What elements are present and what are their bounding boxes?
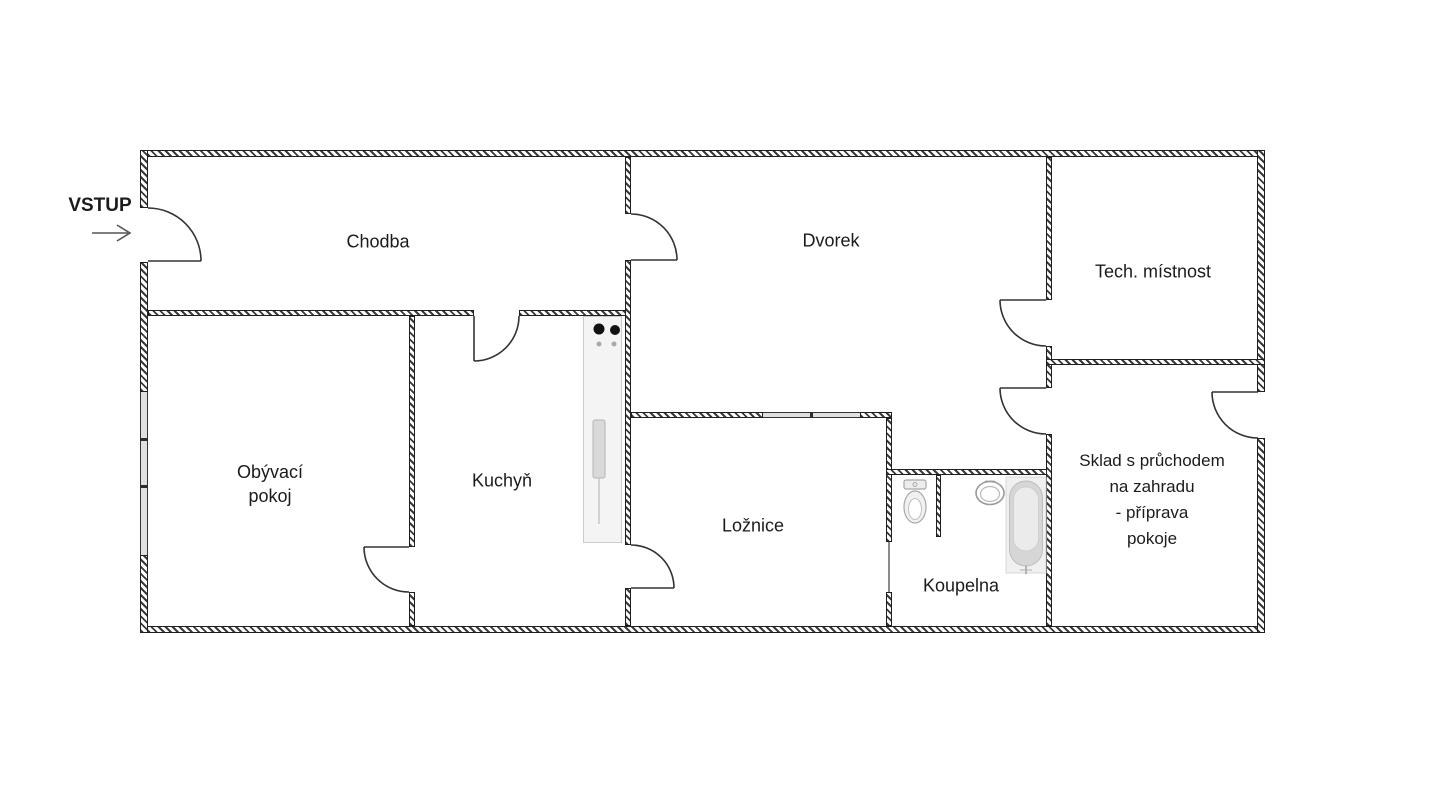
wall-main-vertical-3 [625, 588, 631, 626]
tech-room-door-arc [1000, 300, 1046, 346]
wall-exterior-right-2 [1257, 438, 1265, 633]
floor-plan-canvas: VSTUP Chodba Dvorek Tech. místnost Kuchy… [0, 0, 1450, 810]
wall-courtyard-right-2 [1046, 346, 1052, 388]
wall-bathroom-top [886, 469, 1052, 475]
room-label-tech: Tech. místnost [1095, 260, 1211, 285]
sklad-line1: Sklad s průchodem [1079, 451, 1225, 470]
entrance-arrow-icon [92, 225, 130, 241]
sklad-line3: - příprava [1116, 503, 1189, 522]
wall-exterior-top [140, 150, 1265, 157]
bedroom-window-divider [810, 412, 813, 418]
bathtub-icon [1006, 477, 1046, 574]
wall-courtyard-right-3 [1046, 434, 1052, 626]
washbasin-icon [976, 481, 1004, 505]
room-label-sklad: Sklad s průchodem na zahradu - příprava … [1079, 448, 1225, 552]
wall-exterior-left-1 [140, 150, 148, 208]
wall-main-vertical-1 [625, 157, 631, 214]
kitchen-counter [583, 316, 622, 543]
garden-door-arc [1212, 392, 1258, 438]
wall-tech-bottom [1046, 359, 1265, 365]
room-label-loznice: Ložnice [722, 514, 784, 539]
room-label-chodba: Chodba [346, 230, 409, 255]
room-label-kuchyn: Kuchyň [472, 469, 532, 494]
wall-bedroom-top-1 [631, 412, 763, 418]
wall-living-kitchen-2 [409, 592, 415, 626]
wall-courtyard-right-1 [1046, 157, 1052, 300]
storage-door-arc [1000, 388, 1046, 434]
wall-exterior-right-1 [1257, 150, 1265, 392]
wall-exterior-left-2 [140, 262, 148, 392]
sklad-line2: na zahradu [1109, 477, 1194, 496]
bedroom-door-arc [631, 545, 674, 588]
living-room-window [140, 392, 148, 555]
entrance-label: VSTUP [68, 195, 131, 217]
hall-courtyard-door-arc [631, 214, 677, 260]
kitchen-door-arc [474, 316, 519, 361]
wall-main-vertical-2 [625, 260, 631, 545]
wall-exterior-left-3 [140, 555, 148, 633]
living-room-window-divider-1 [140, 438, 148, 441]
obyvaci-line1: Obývací [237, 462, 303, 482]
wall-living-kitchen-1 [409, 316, 415, 547]
plan-overlay [0, 0, 1450, 810]
room-label-dvorek: Dvorek [802, 229, 859, 254]
room-label-obyvaci-pokoj: Obývací pokoj [237, 460, 303, 508]
living-room-window-divider-2 [140, 485, 148, 488]
toilet-icon [904, 480, 926, 523]
living-room-door-arc [364, 547, 409, 592]
sklad-line4: pokoje [1127, 529, 1177, 548]
wall-hall-bottom-1 [148, 310, 474, 316]
wall-exterior-bottom [140, 626, 1265, 633]
wall-bathroom-partition [936, 475, 941, 537]
wall-bedroom-bathroom-1 [886, 418, 892, 542]
entrance-door-arc [148, 208, 201, 261]
obyvaci-line2: pokoj [248, 486, 291, 506]
wall-bedroom-bathroom-2 [886, 592, 892, 626]
room-label-koupelna: Koupelna [923, 574, 999, 599]
bathroom-opening-line [888, 542, 890, 592]
